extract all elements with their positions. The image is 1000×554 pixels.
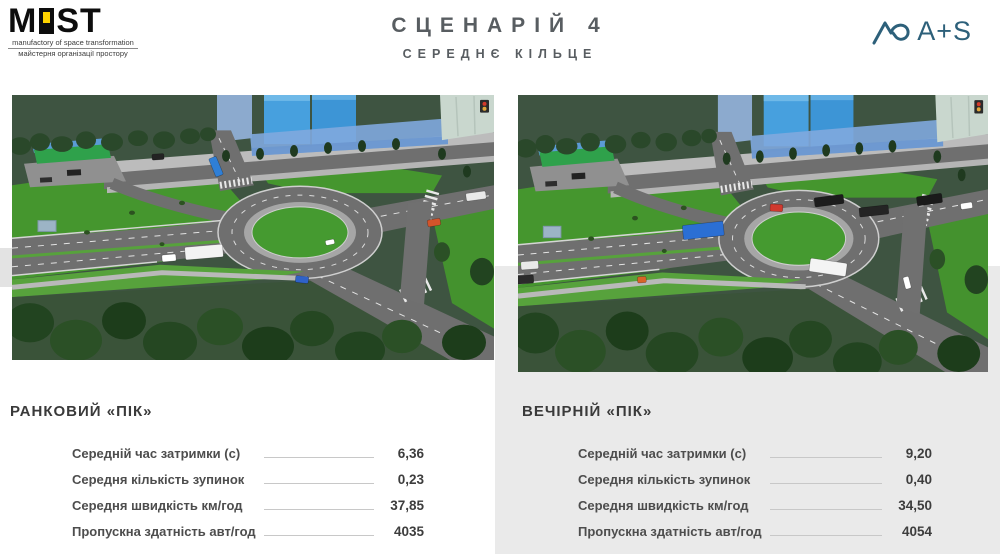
page-subtitle: СЕРЕДНЄ КІЛЬЦЕ: [0, 47, 1000, 61]
simulation-image-morning: [12, 95, 494, 360]
stat-row: Пропускна здатність авт/год 4054: [578, 518, 932, 544]
title-block: СЦЕНАРІЙ 4 СЕРЕДНЄ КІЛЬЦЕ: [0, 14, 1000, 61]
stat-label: Пропускна здатність авт/год: [578, 519, 768, 545]
leader-line: [264, 466, 374, 484]
stat-row: Середня кількість зупинок 0,23: [72, 466, 424, 492]
stat-value: 4054: [884, 519, 932, 545]
evening-stats: Середній час затримки (с) 9,20 Середня к…: [578, 440, 932, 544]
stat-label: Середня кількість зупинок: [578, 467, 768, 493]
evening-peak-heading: ВЕЧІРНІЙ «ПІК»: [522, 403, 652, 420]
leader-line: [770, 466, 882, 484]
stat-value: 0,23: [376, 467, 424, 493]
stat-value: 4035: [376, 519, 424, 545]
page-title: СЦЕНАРІЙ 4: [0, 14, 1000, 38]
stat-label: Середня кількість зупинок: [72, 467, 262, 493]
leader-line: [770, 440, 882, 458]
leader-line: [770, 518, 882, 536]
leader-line: [264, 440, 374, 458]
stat-value: 37,85: [376, 493, 424, 519]
stat-label: Середня швидкість км/год: [72, 493, 262, 519]
stat-value: 9,20: [884, 441, 932, 467]
stat-label: Пропускна здатність авт/год: [72, 519, 262, 545]
stat-value: 0,40: [884, 467, 932, 493]
as-mountain-icon: [871, 14, 911, 48]
leader-line: [770, 492, 882, 510]
simulation-image-evening: [518, 95, 988, 372]
stat-label: Середній час затримки (с): [72, 441, 262, 467]
stat-row: Пропускна здатність авт/год 4035: [72, 518, 424, 544]
left-accent-strip: [0, 248, 12, 287]
stat-row: Середня кількість зупинок 0,40: [578, 466, 932, 492]
morning-peak-heading: РАНКОВИЙ «ПІК»: [10, 403, 153, 420]
morning-stats: Середній час затримки (с) 6,36 Середня к…: [72, 440, 424, 544]
stat-row: Середній час затримки (с) 6,36: [72, 440, 424, 466]
stat-row: Середня швидкість км/год 34,50: [578, 492, 932, 518]
stat-row: Середня швидкість км/год 37,85: [72, 492, 424, 518]
stat-value: 34,50: [884, 493, 932, 519]
stat-label: Середня швидкість км/год: [578, 493, 768, 519]
stat-row: Середній час затримки (с) 9,20: [578, 440, 932, 466]
stat-value: 6,36: [376, 441, 424, 467]
as-logo: A+S: [871, 14, 972, 48]
stat-label: Середній час затримки (с): [578, 441, 768, 467]
leader-line: [264, 492, 374, 510]
as-logo-text: A+S: [917, 16, 972, 47]
slide-root: M ST manufactory of space transformation…: [0, 0, 1000, 554]
leader-line: [264, 518, 374, 536]
